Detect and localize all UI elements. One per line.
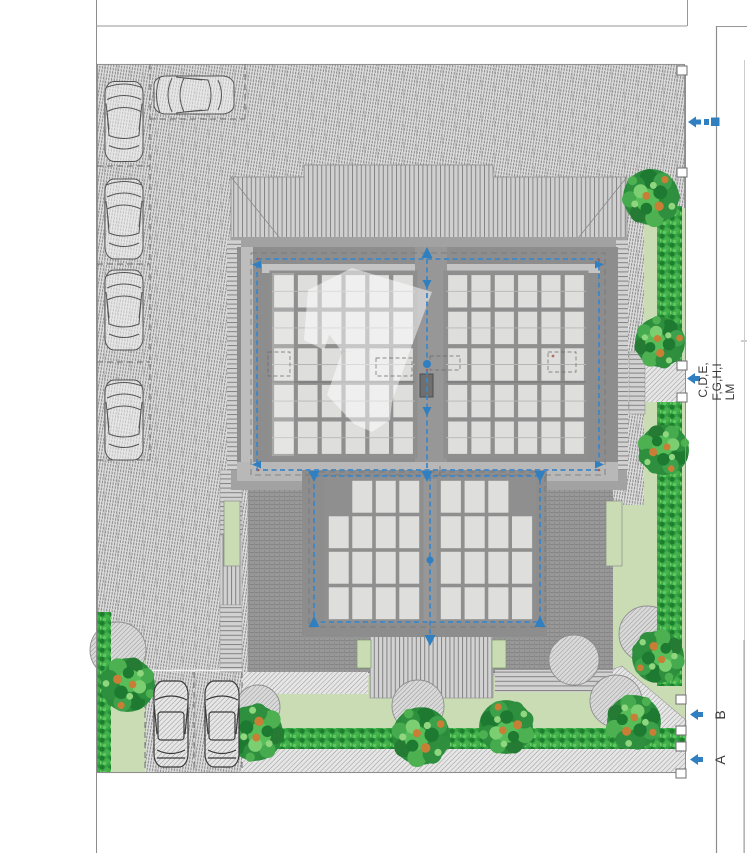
svg-text:B: B: [712, 710, 728, 719]
svg-text:LM: LM: [723, 384, 737, 401]
svg-text:F,G,H,I: F,G,H,I: [710, 363, 724, 400]
svg-text:C,D,E,: C,D,E,: [696, 362, 710, 397]
svg-text:A: A: [712, 755, 728, 765]
